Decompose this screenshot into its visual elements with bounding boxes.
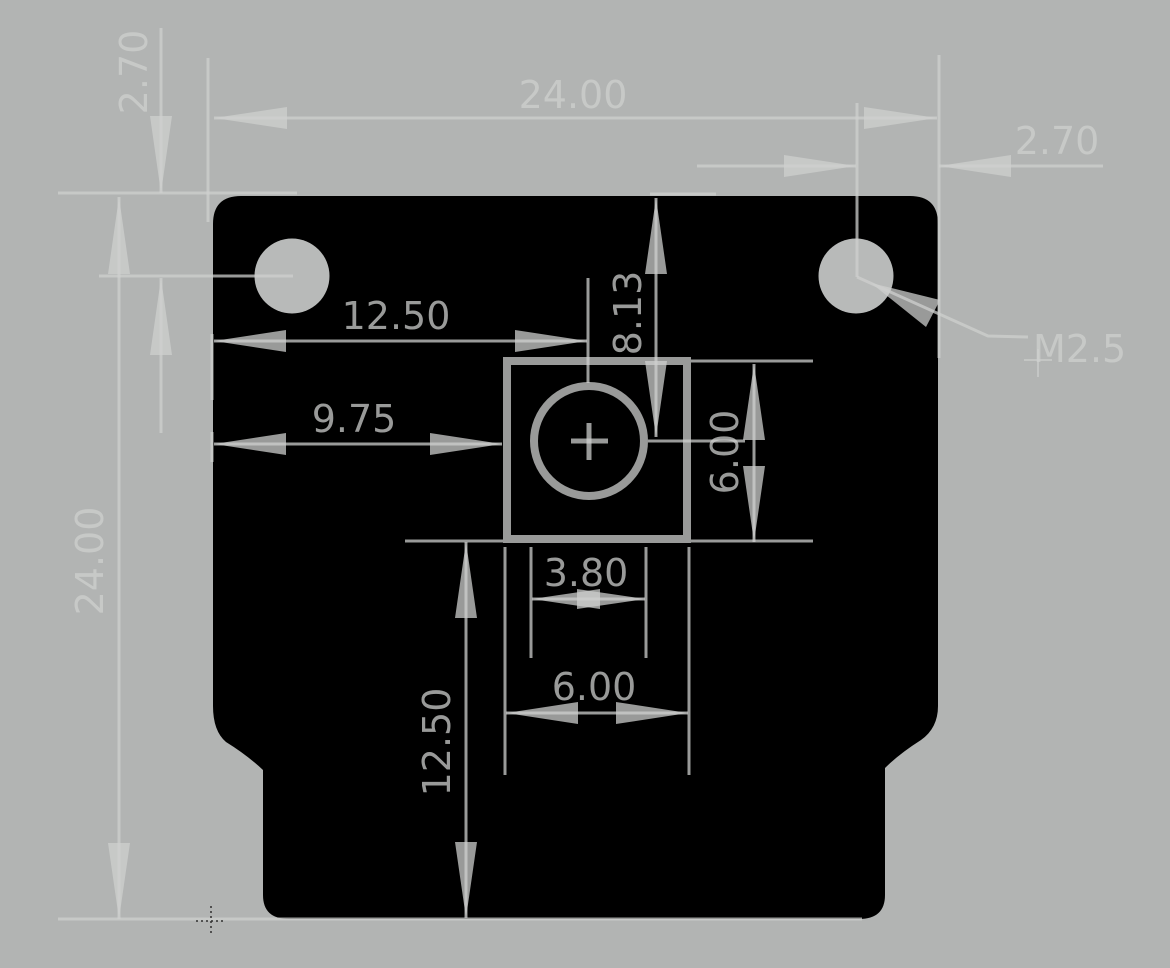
dim-label-width-top: 24.00 <box>519 73 628 117</box>
arrowhead <box>864 107 937 129</box>
dim-label-lens-diameter: 3.80 <box>544 551 629 595</box>
dim-label-sensor-from-left: 9.75 <box>312 397 397 441</box>
camera-board-dimension-drawing: 24.00 2.70 2.70 12.50 9.75 8.13 6.00 3.8… <box>0 0 1170 968</box>
dim-label-height-left: 24.00 <box>68 507 112 616</box>
dimension-drawing-canvas: 24.00 2.70 2.70 12.50 9.75 8.13 6.00 3.8… <box>0 0 1170 968</box>
dim-label-sensor-width: 6.00 <box>552 665 637 709</box>
arrowhead <box>108 197 130 274</box>
dim-label-sensor-height: 6.00 <box>703 410 747 495</box>
arrowhead <box>108 843 130 919</box>
arrowhead <box>939 155 1011 177</box>
arrowhead <box>150 116 172 193</box>
dim-label-hole-offset-right: 2.70 <box>1015 119 1100 163</box>
label-mounting-hole-thread: M2.5 <box>1033 327 1126 371</box>
dim-label-lens-from-top: 8.13 <box>606 271 650 356</box>
dim-label-lens-from-left: 12.50 <box>342 294 451 338</box>
arrowhead <box>784 155 856 177</box>
dim-label-sensor-to-bottom: 12.50 <box>415 688 459 797</box>
arrowhead <box>150 278 172 355</box>
origin-cross-marker <box>196 906 226 936</box>
arrowhead <box>214 107 287 129</box>
dim-label-hole-offset-left: 2.70 <box>112 30 156 115</box>
